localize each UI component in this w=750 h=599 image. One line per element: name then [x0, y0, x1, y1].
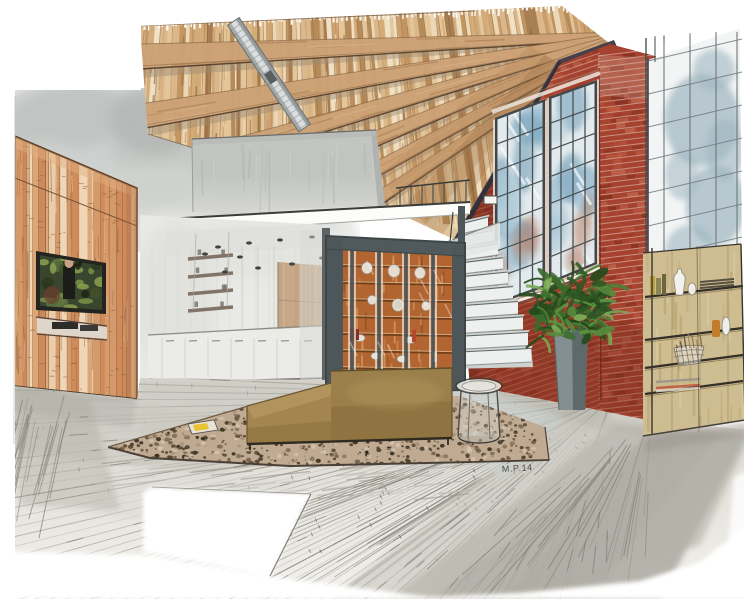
svg-text:M.P.14: M.P.14 — [502, 462, 533, 474]
